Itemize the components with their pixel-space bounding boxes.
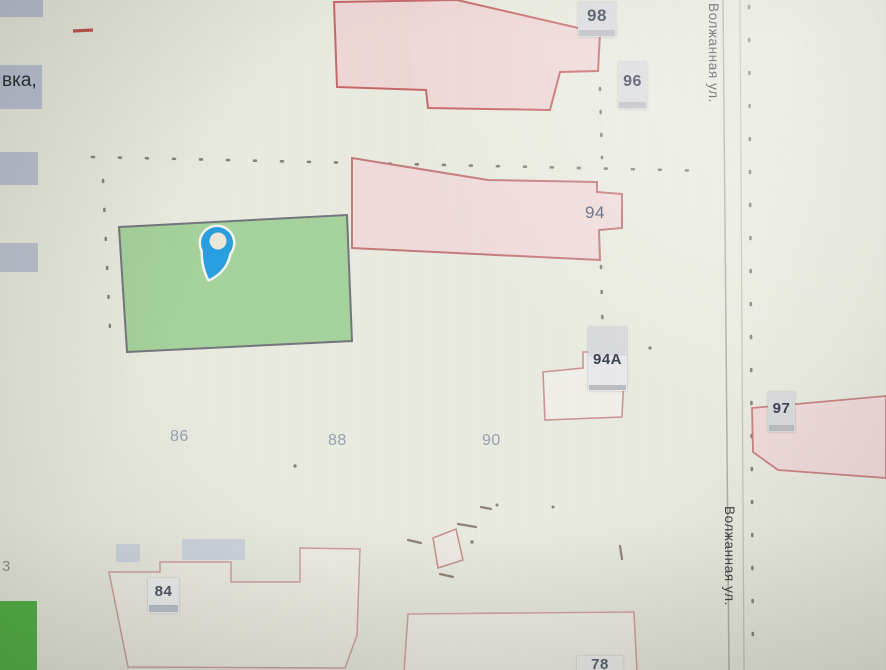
- house-label-86: 86: [170, 428, 189, 446]
- badge-94a-label: 94А: [588, 327, 627, 385]
- badge-78-label: 78: [577, 656, 623, 670]
- badge-78-partial[interactable]: 78: [577, 656, 623, 670]
- sidebar-item-3-partial[interactable]: [0, 152, 38, 185]
- building-98-footprint[interactable]: [334, 0, 600, 110]
- badge-97[interactable]: 97: [768, 392, 795, 432]
- road-edge-right: [740, 0, 744, 670]
- badge-96[interactable]: 96: [618, 62, 647, 109]
- sidebar-item-1-partial[interactable]: [0, 0, 43, 17]
- small-shed-footprint[interactable]: [433, 529, 463, 568]
- badge-84-label: 84: [148, 578, 179, 605]
- house-label-88: 88: [328, 432, 347, 450]
- building-84-footprint[interactable]: [109, 548, 360, 668]
- badge-98[interactable]: 98: [578, 2, 616, 37]
- badge-98-label: 98: [578, 2, 616, 30]
- badge-94a[interactable]: 94А: [588, 327, 627, 391]
- badge-84[interactable]: 84: [148, 578, 179, 613]
- house-label-94: 94: [585, 203, 605, 223]
- street-name-bottom: Волжанная ул.: [722, 506, 737, 624]
- badge-97-strip: [769, 425, 794, 431]
- street-name-top: Волжанная ул.: [706, 3, 721, 115]
- map-highlight-rect-small: [116, 544, 140, 562]
- green-button-partial[interactable]: [0, 601, 37, 670]
- selected-parcel[interactable]: [119, 215, 352, 352]
- badge-84-strip: [149, 605, 178, 612]
- badge-96-strip: [619, 102, 646, 108]
- badge-94a-strip: [589, 385, 626, 390]
- badge-98-strip: [579, 30, 615, 36]
- badge-96-label: 96: [618, 62, 647, 102]
- sidebar-item-2-partial[interactable]: вка,: [0, 65, 42, 109]
- sidebar-item-4-partial[interactable]: [0, 243, 38, 272]
- map-highlight-rect-large: [182, 539, 245, 560]
- sidebar-item-2-text: вка,: [0, 65, 42, 92]
- house-label-90: 90: [482, 432, 501, 450]
- badge-97-label: 97: [768, 392, 795, 425]
- map-application-screen: 98 96 94А 97 84 78 94 86 88 90 3 Волжанн…: [0, 0, 886, 670]
- map-canvas[interactable]: [0, 0, 886, 670]
- partial-count-label: 3: [2, 558, 11, 575]
- building-94-footprint[interactable]: [352, 158, 622, 260]
- red-line-fragment: [73, 30, 93, 31]
